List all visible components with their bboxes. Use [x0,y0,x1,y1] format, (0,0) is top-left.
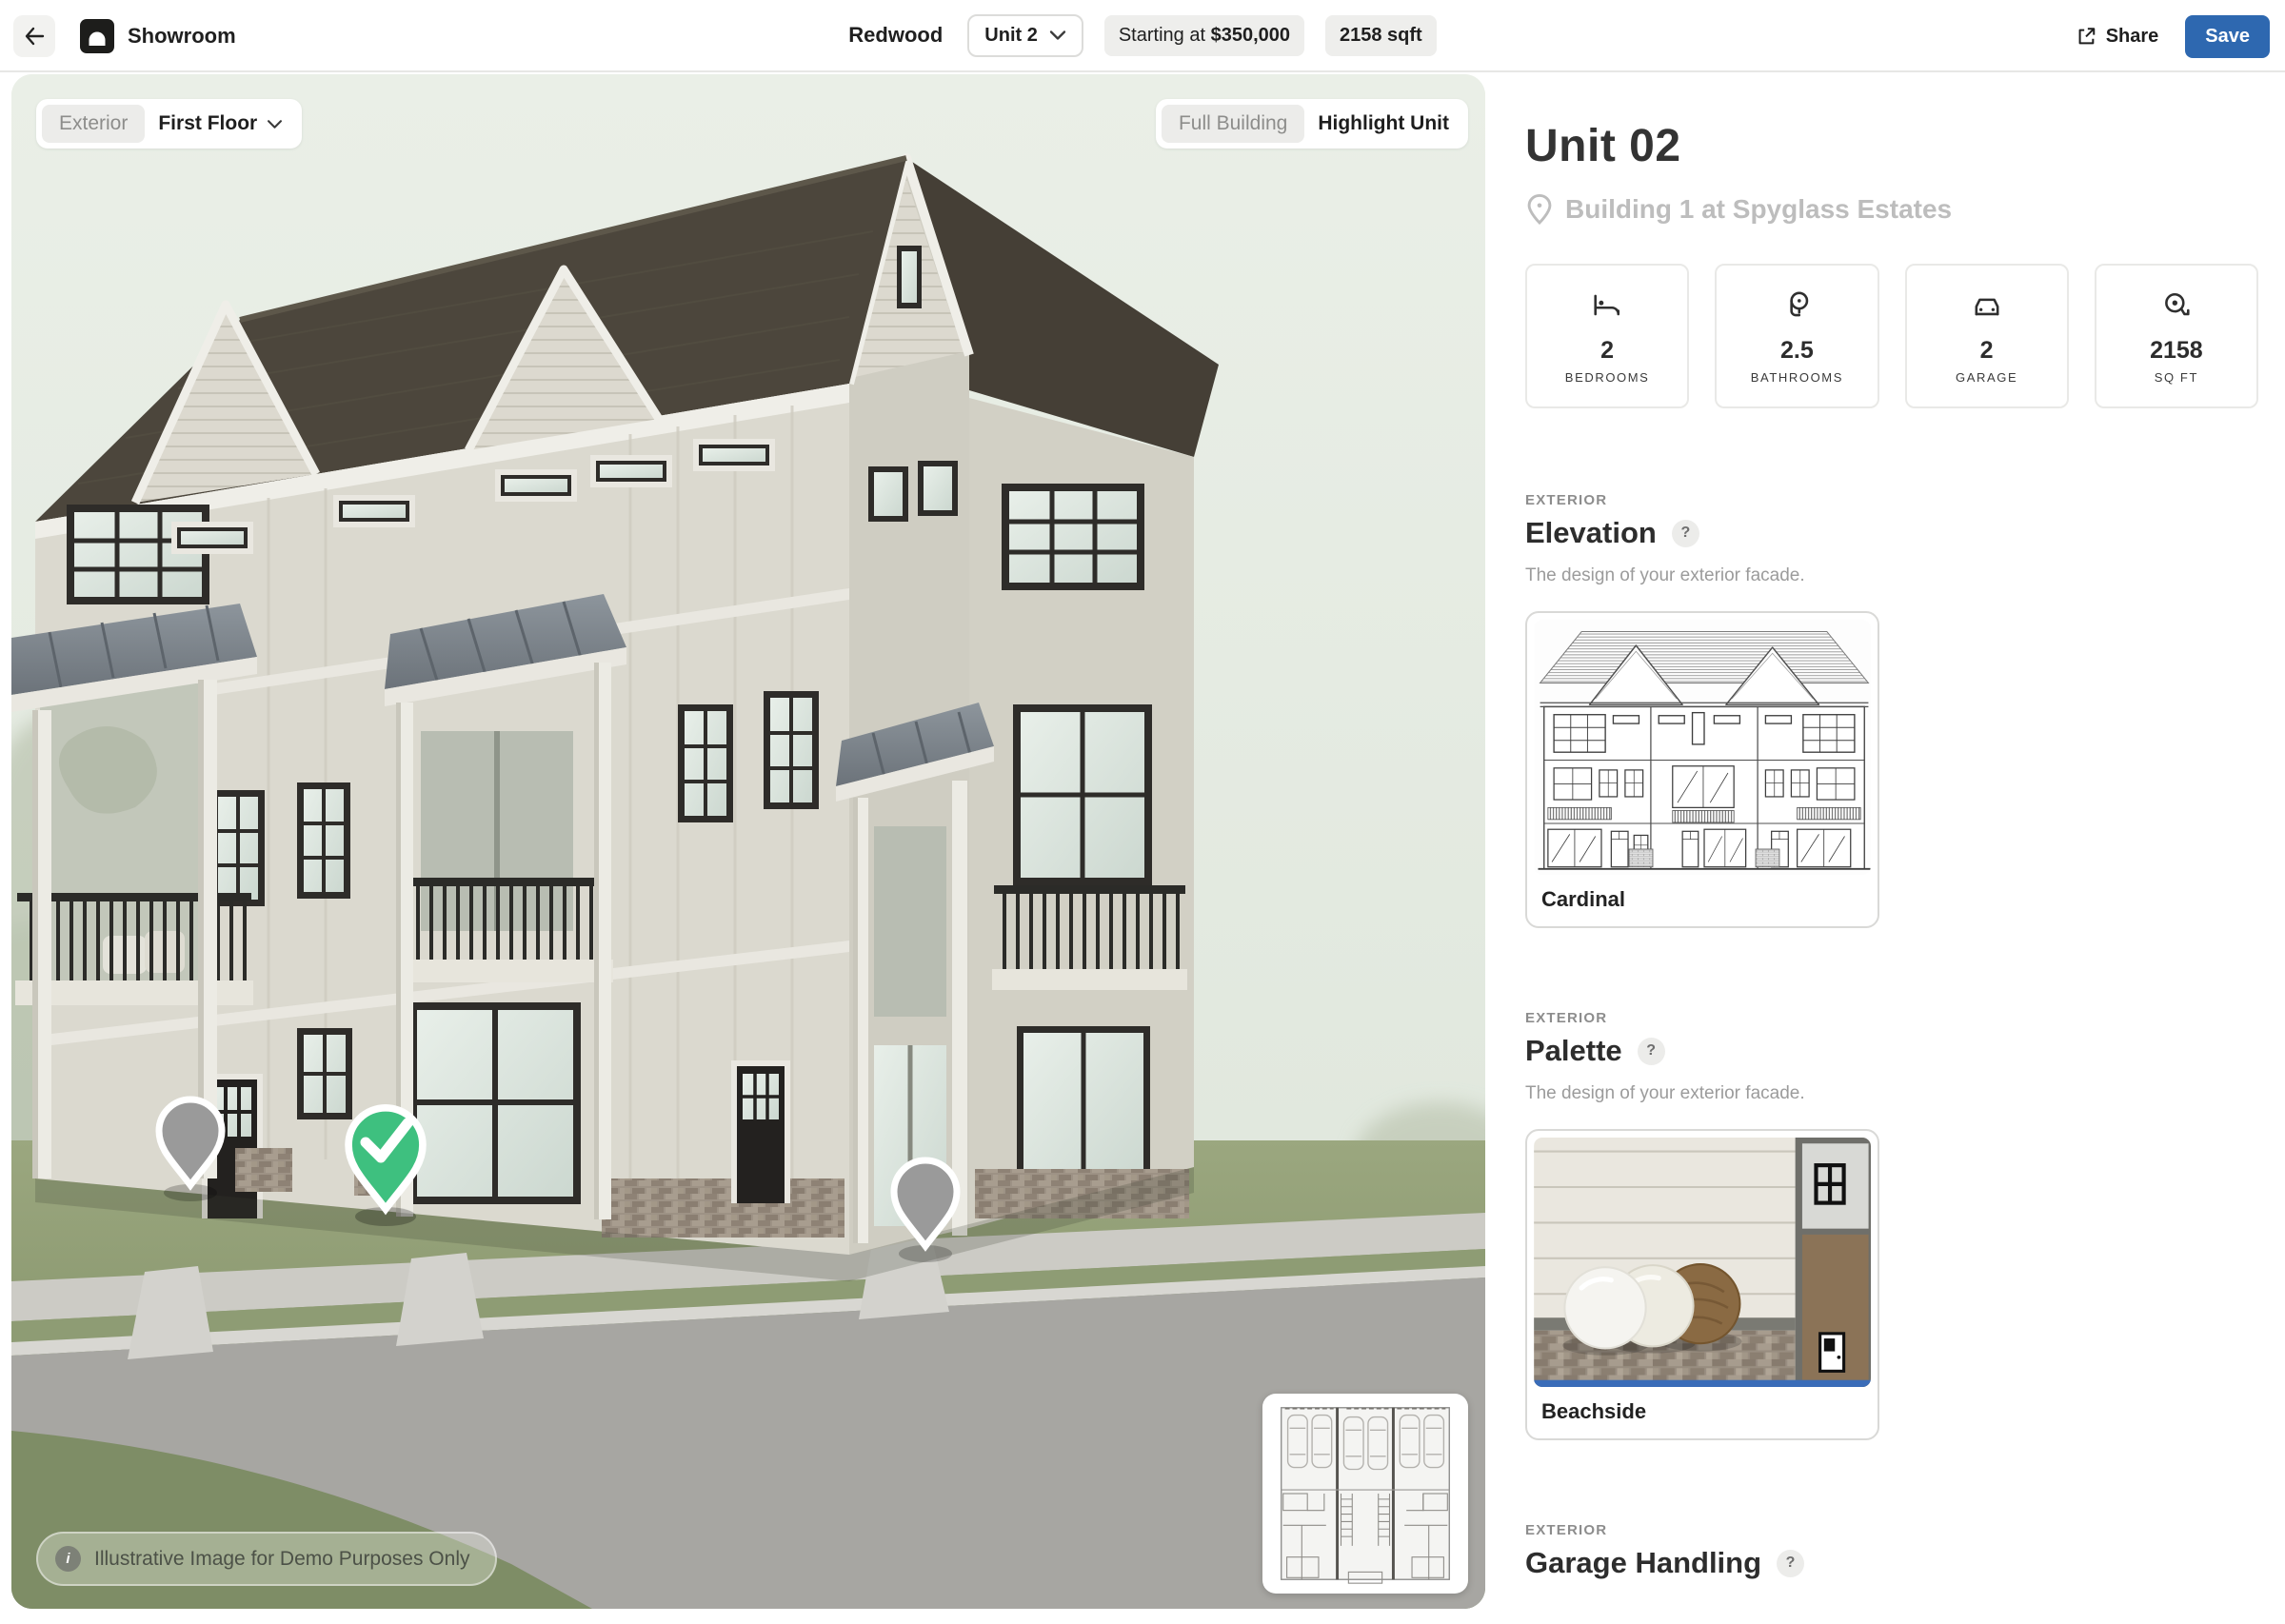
save-button[interactable]: Save [2185,15,2270,58]
view-selector-dropdown[interactable]: Exterior First Floor [36,99,302,149]
render-viewport[interactable]: Exterior First Floor Full Building Highl… [11,74,1485,1609]
unit-title: Unit 02 [1525,120,2258,172]
elevation-option-cardinal[interactable]: Cardinal [1525,611,1879,928]
elevation-description: The design of your exterior facade. [1525,565,2258,586]
garage-handling-title: Garage Handling [1525,1546,1761,1580]
unit-location: Building 1 at Spyglass Estates [1525,193,2258,226]
cardinal-elevation-drawing [1534,620,1871,875]
bath-icon [1778,287,1815,324]
chevron-down-icon [1049,30,1066,41]
header-right: Share Save [2076,0,2270,72]
location-pin-icon [1525,193,1554,226]
unit-selector-value: Unit 2 [984,25,1038,47]
view-context-segment: Exterior [42,105,145,143]
view-floor-segment: First Floor [145,105,296,143]
toggle-highlight-unit[interactable]: Highlight Unit [1304,105,1462,143]
back-arrow-icon [23,25,46,48]
car-icon [1969,287,2005,324]
unit-details-panel: Unit 02 Building 1 at Spyglass Estates 2… [1485,72,2285,1624]
garage-handling-help-icon[interactable]: ? [1777,1550,1804,1577]
plan-name: Redwood [848,23,943,48]
sqft-badge: 2158 sqft [1325,15,1437,56]
brand[interactable]: Showroom [80,19,236,53]
price-value: $350,000 [1211,25,1290,46]
beachside-palette-swatch [1534,1138,1871,1387]
header-center: Redwood Unit 2 Starting at $350,000 2158… [848,14,1436,57]
stat-bedrooms: 2 BEDROOMS [1525,264,1689,408]
share-label: Share [2106,26,2159,48]
palette-description: The design of your exterior facade. [1525,1083,2258,1104]
showroom-app: Showroom Redwood Unit 2 Starting at $350… [0,0,2285,1624]
bed-icon [1589,287,1625,324]
header-left: Showroom [13,0,236,72]
floorplan-minimap[interactable] [1262,1394,1468,1594]
top-bar: Showroom Redwood Unit 2 Starting at $350… [0,0,2285,72]
building-mode-toggle[interactable]: Full Building Highlight Unit [1156,99,1468,149]
building-render [11,74,1485,1609]
disclaimer-banner: i Illustrative Image for Demo Purposes O… [36,1532,497,1586]
palette-help-icon[interactable]: ? [1638,1038,1665,1065]
unit-selector-dropdown[interactable]: Unit 2 [967,14,1083,57]
palette-option-label: Beachside [1534,1387,1871,1438]
back-button[interactable] [13,15,55,57]
price-badge: Starting at $350,000 [1104,15,1304,56]
stat-bathrooms: 2.5 BATHROOMS [1715,264,1878,408]
toggle-full-building[interactable]: Full Building [1162,105,1304,143]
unit-stats: 2 BEDROOMS 2.5 BATHROOMS 2 GAR [1525,264,2258,408]
section-garage-handling: EXTERIOR Garage Handling ? [1525,1522,2258,1580]
elevation-option-label: Cardinal [1534,875,1871,926]
info-icon: i [55,1546,81,1572]
stat-garage: 2 GARAGE [1905,264,2069,408]
palette-title: Palette [1525,1034,1622,1068]
tape-measure-icon [2158,287,2195,324]
share-button[interactable]: Share [2076,26,2159,48]
section-elevation: EXTERIOR Elevation ? The design of your … [1525,492,2258,928]
palette-option-beachside[interactable]: Beachside [1525,1129,1879,1440]
elevation-title: Elevation [1525,516,1657,550]
showroom-logo-icon [80,19,114,53]
chevron-down-icon [267,119,283,129]
elevation-help-icon[interactable]: ? [1672,520,1699,547]
stat-sqft: 2158 SQ FT [2095,264,2258,408]
share-external-icon [2076,26,2096,47]
disclaimer-text: Illustrative Image for Demo Purposes Onl… [94,1548,470,1571]
price-prefix: Starting at [1119,25,1205,46]
floorplan-drawing [1268,1399,1462,1588]
section-palette: EXTERIOR Palette ? The design of your ex… [1525,1010,2258,1440]
app-name: Showroom [128,24,236,49]
location-text: Building 1 at Spyglass Estates [1565,194,1952,225]
selected-indicator [1534,1380,1871,1387]
